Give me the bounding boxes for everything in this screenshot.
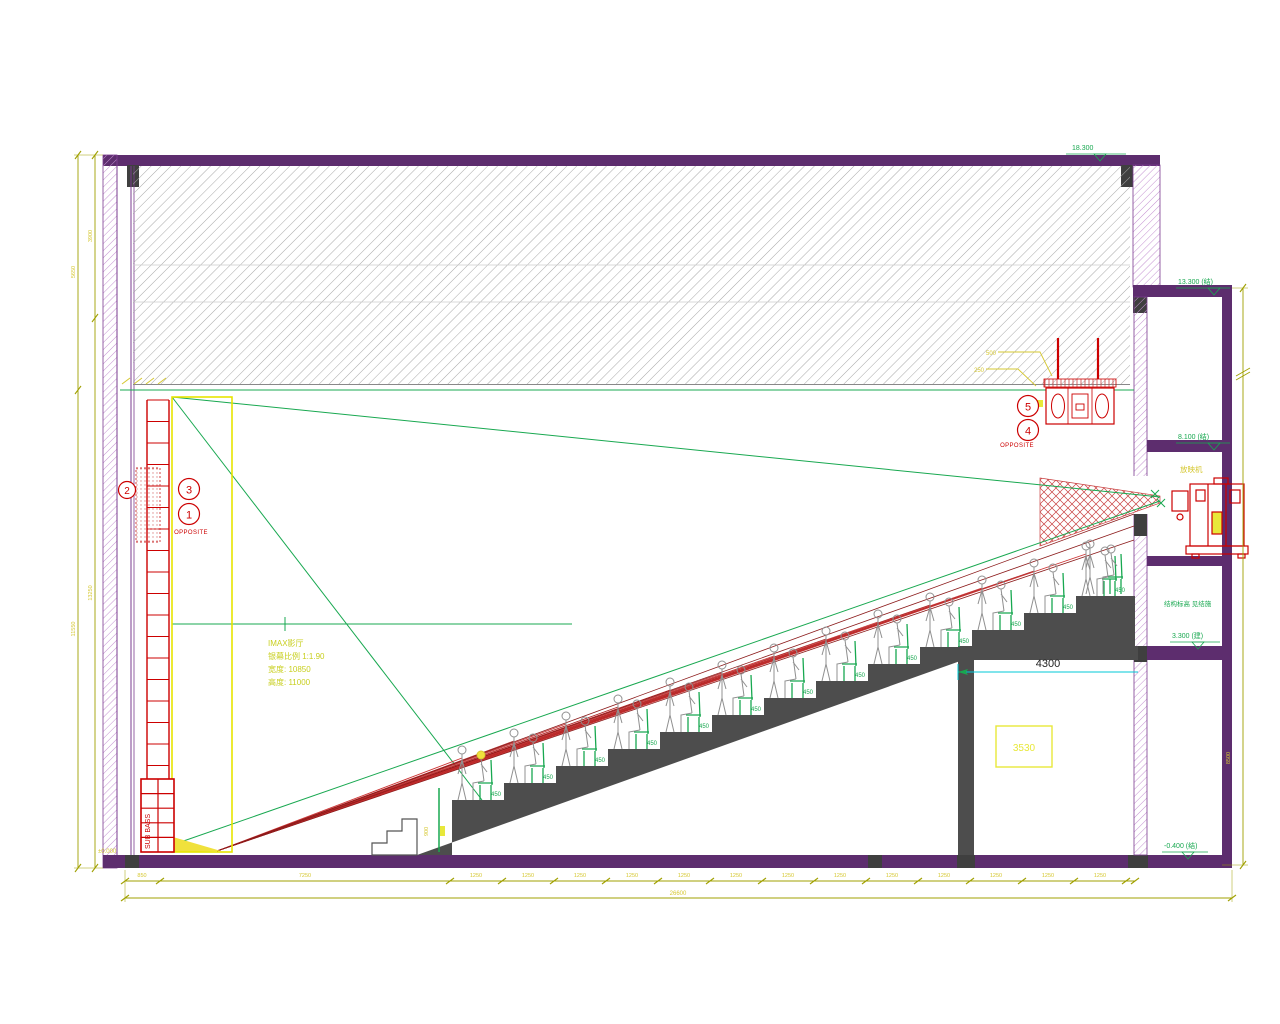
projector: 放映机 xyxy=(1151,464,1248,558)
seated-person xyxy=(1103,545,1123,594)
booth-front-wall xyxy=(1134,297,1147,855)
standing-person xyxy=(1030,559,1038,613)
ceiling-void-hatch xyxy=(133,166,1130,385)
svg-text:银幕比例 1:1.90: 银幕比例 1:1.90 xyxy=(268,651,325,661)
seat-dim: 450 xyxy=(543,775,554,781)
bottom-dim: 1250 xyxy=(782,873,794,879)
datum-label: ±0.000 xyxy=(98,849,117,855)
svg-text:8.100 (结): 8.100 (结) xyxy=(1178,432,1209,441)
bottom-dim: 1250 xyxy=(470,873,482,879)
bottom-dim: 1250 xyxy=(1042,873,1054,879)
bottom-dim: 1250 xyxy=(574,873,586,879)
booth-floor xyxy=(1147,556,1222,566)
seat-dim: 450 xyxy=(699,724,710,730)
speaker-dim-2: 250 xyxy=(974,368,985,374)
bottom-dim: 1250 xyxy=(834,873,846,879)
projector-body xyxy=(1172,478,1248,558)
svg-text:3.300 (建): 3.300 (建) xyxy=(1172,631,1203,640)
standing-person xyxy=(926,593,934,647)
seat-dim: 450 xyxy=(959,639,970,645)
eye-point-wedge xyxy=(173,837,221,852)
standing-person xyxy=(718,661,726,715)
bottom-dim: 1250 xyxy=(938,873,950,879)
sight-line xyxy=(217,526,1134,851)
seat-dim: 450 xyxy=(595,758,606,764)
sight-line xyxy=(217,514,1134,851)
callout-1: 1 xyxy=(186,510,192,522)
seat-dim: 450 xyxy=(1063,605,1074,611)
standing-person xyxy=(822,627,830,681)
bottom-dim: 1250 xyxy=(522,873,534,879)
sub-bass-label: SUB BASS xyxy=(145,814,152,849)
audience-figures: 450450450450450450450450450450450450450 xyxy=(458,540,1126,800)
callout-3: 3 xyxy=(186,485,192,497)
screen-note: IMAX影厅 银幕比例 1:1.90 宽度: 10850 高度: 11000 xyxy=(268,638,325,687)
seat-dim: 450 xyxy=(907,656,918,662)
standing-person xyxy=(562,712,570,766)
bottom-dim: 1250 xyxy=(626,873,638,879)
opposite-label-left: OPPOSITE xyxy=(174,530,208,536)
room-number: 3530 xyxy=(1013,743,1036,754)
standing-person xyxy=(1082,542,1090,596)
seat-dim: 450 xyxy=(647,741,658,747)
cad-viewport: 4300 3530 SUB BASS 2 3 1 OPPOSITE xyxy=(0,0,1280,1024)
callout-5: 5 xyxy=(1025,402,1031,414)
sight-line xyxy=(217,540,1134,851)
speaker-dim-1: 500 xyxy=(986,351,997,357)
bottom-dim: 1250 xyxy=(990,873,1002,879)
bottom-dim: 850 xyxy=(137,873,146,879)
entry-steps xyxy=(372,819,417,855)
seat-dim: 450 xyxy=(491,792,502,798)
bottom-dim: 1250 xyxy=(886,873,898,879)
room-width-dim: 4300 xyxy=(1036,658,1060,670)
bottom-dim: 1250 xyxy=(730,873,742,879)
standing-person xyxy=(770,644,778,698)
far-right-wall xyxy=(1222,285,1232,868)
standing-person xyxy=(458,746,466,800)
speaker-mount-bar xyxy=(1044,379,1116,387)
svg-text:高度: 11000: 高度: 11000 xyxy=(268,677,311,687)
callout-4: 4 xyxy=(1025,426,1031,438)
standing-person xyxy=(978,576,986,630)
understair-wall xyxy=(958,660,974,855)
seat-dim: 450 xyxy=(803,690,814,696)
left-dim: 11550 xyxy=(71,622,77,637)
bottom-dim: 7250 xyxy=(299,873,311,879)
ground-slab xyxy=(103,855,1232,868)
left-dim: 3900 xyxy=(88,230,94,242)
svg-text:18.300: 18.300 xyxy=(1072,145,1094,152)
opposite-label-right: OPPOSITE xyxy=(1000,443,1034,449)
rail-height-dim: 900 xyxy=(424,827,430,836)
left-wall xyxy=(103,155,117,868)
understair-room: 4300 3530 xyxy=(958,658,1138,767)
sight-lines-green xyxy=(120,390,1160,845)
projector-label: 放映机 xyxy=(1180,464,1203,474)
slab-3300 xyxy=(1147,646,1222,660)
seat-dim: 450 xyxy=(1011,622,1022,628)
callout-2: 2 xyxy=(124,486,130,497)
roof-slab xyxy=(103,155,1160,166)
speaker-box xyxy=(1046,388,1114,424)
seat-dim: 450 xyxy=(751,707,762,713)
behind-screen-speaker xyxy=(136,468,160,542)
bottom-total-dim: 26600 xyxy=(670,891,687,897)
right-dim: 8500 xyxy=(1226,752,1232,764)
svg-text:宽度: 10850: 宽度: 10850 xyxy=(268,664,311,674)
left-dim: 13250 xyxy=(88,585,94,600)
left-dim: 5650 xyxy=(71,266,77,278)
svg-text:IMAX影厅: IMAX影厅 xyxy=(268,638,304,648)
section-drawing: 4300 3530 SUB BASS 2 3 1 OPPOSITE xyxy=(0,0,1280,1024)
standing-person xyxy=(510,729,518,783)
sight-lines-red xyxy=(217,514,1134,851)
bottom-dim: 1250 xyxy=(1094,873,1106,879)
standing-person xyxy=(614,695,622,749)
standing-person xyxy=(666,678,674,732)
seat-dim: 450 xyxy=(855,673,866,679)
bottom-dim: 1250 xyxy=(678,873,690,879)
svg-text:-0.400 (结): -0.400 (结) xyxy=(1164,841,1197,850)
right-upper-wall xyxy=(1133,165,1160,287)
seat-dim: 450 xyxy=(1115,588,1126,594)
svg-text:13.300 (结): 13.300 (结) xyxy=(1178,277,1213,286)
booth-note: 结构标高 见结施 xyxy=(1164,599,1212,608)
